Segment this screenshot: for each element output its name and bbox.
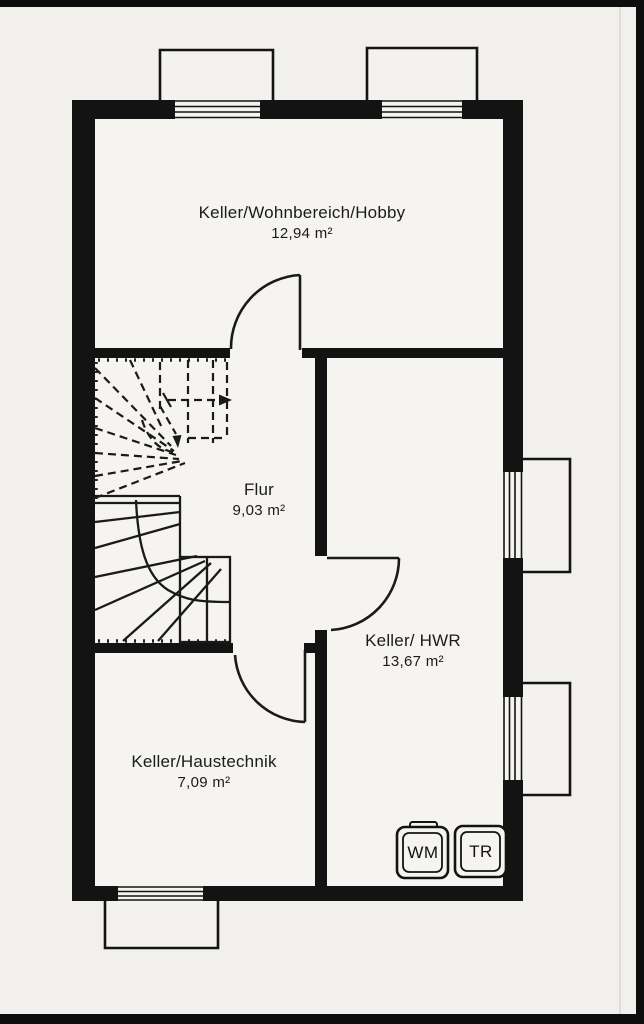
wall-hobby-right <box>302 348 503 358</box>
wall-flur-hwr <box>315 358 327 556</box>
light-well-east-upper <box>523 459 570 572</box>
window-opening <box>175 100 260 119</box>
room-name: Keller/Wohnbereich/Hobby <box>199 202 406 223</box>
light-well-north-left <box>160 50 273 100</box>
room-area: 12,94 m² <box>199 225 406 244</box>
room-area: 13,67 m² <box>365 653 461 672</box>
window-opening <box>503 697 523 780</box>
room-name: Keller/Haustechnik <box>131 751 276 772</box>
room-label-flur: Flur 9,03 m² <box>233 479 286 521</box>
room-area: 9,03 m² <box>233 502 286 521</box>
wall-haustechnik-hwr <box>315 630 327 886</box>
wall-west <box>72 100 95 901</box>
window-opening <box>118 886 203 901</box>
wall-hobby-left <box>95 348 230 358</box>
window-north-right <box>382 100 462 119</box>
light-well-south <box>105 901 218 948</box>
room-name: Keller/ HWR <box>365 630 461 651</box>
floor-plan-drawing <box>0 0 644 1024</box>
washer-label: WM <box>407 843 438 863</box>
room-name: Flur <box>233 479 286 500</box>
dryer-label: TR <box>469 842 493 862</box>
window-opening <box>382 100 462 119</box>
window-opening <box>503 472 523 558</box>
room-label-haustechnik: Keller/Haustechnik 7,09 m² <box>131 751 276 793</box>
window-east-lower <box>503 697 523 780</box>
window-east-upper <box>503 472 523 558</box>
window-north-left <box>175 100 260 119</box>
room-label-hobby: Keller/Wohnbereich/Hobby 12,94 m² <box>199 202 406 244</box>
window-south <box>118 886 203 901</box>
scanned-page: Keller/Wohnbereich/Hobby 12,94 m² Flur 9… <box>0 0 644 1024</box>
light-well-east-lower <box>523 683 570 795</box>
room-area: 7,09 m² <box>131 774 276 793</box>
light-well-north-right <box>367 48 477 100</box>
room-label-hwr: Keller/ HWR 13,67 m² <box>365 630 461 672</box>
wall-haustechnik-top <box>95 643 233 653</box>
